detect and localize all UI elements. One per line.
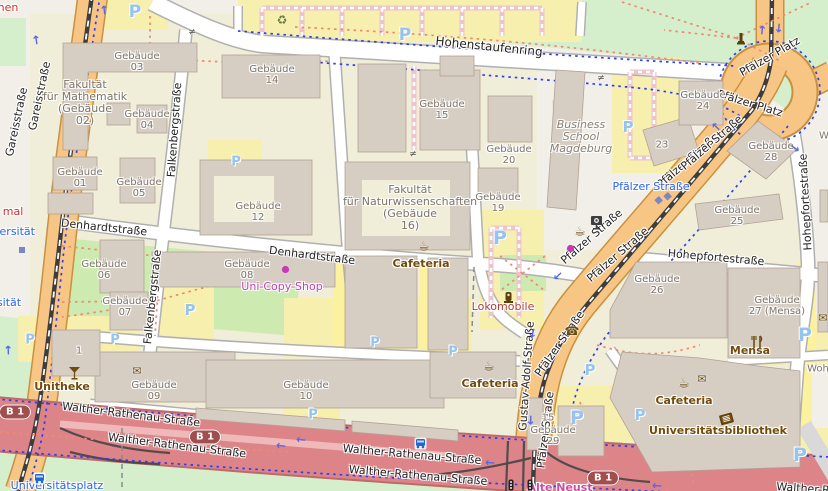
building-label-gebaeude-12: Gebäude 12 [235,201,280,223]
amenity-label-cafeteria: Cafeteria [655,395,712,407]
parking-icon: P [798,324,812,346]
parking-icon: P [399,25,411,45]
cafe-icon: ☕ [483,361,495,374]
parking-icon: P [231,155,241,170]
parking-icon: P [448,345,458,360]
street-label-walther-rathenau: Walther-Rathenau-Straße [348,464,487,488]
label-cut-mal: mal [3,206,24,218]
building-label-gebaeude-28: Gebäude 28 [748,141,793,163]
campus-map[interactable]: HohenstaufenringGareisstraßeGareisstraße… [0,0,828,491]
street-label-pfaelzer-platz: Pfälzer Platz [716,88,784,119]
route-shield-b1: B 1 [189,430,221,445]
street-label-pfaelzer-strasse: Pfälzer Straße [533,309,587,379]
building-label-1: 1 [76,346,82,357]
street-label-hohepfortestrasse: Hohepfortestraße [667,248,765,268]
telephone-icon: ☎ [565,325,580,337]
street-label-walther-rathenau: Walther-Rathenau-Straße [107,432,246,461]
oneway-arrow-icon: → [28,34,43,46]
oneway-arrow-icon: → [772,22,787,33]
parking-icon: P [635,406,646,424]
oneway-arrow-icon: → [1,345,16,356]
building-label-gebaeude-03: Gebäude 03 [114,51,159,73]
parking-icon: P [623,118,634,136]
cafe-icon: ☕ [418,241,430,254]
street-label-walther-rathenau: Walther-Rathenau-Straße [61,401,200,430]
parking-icon: P [570,407,584,429]
building-label-23: 23 [656,140,669,151]
stop-label-universitaet-cut: versität [0,226,35,238]
building-label-gebaeude-25: Gebäude 25 [714,205,759,227]
building-label-gebaeude-09: Gebäude 09 [131,380,176,402]
gate-barrier-icon: ≠ [188,29,196,38]
parking-icon: P [25,333,35,348]
oneway-arrow-icon: → [295,433,306,448]
cafe-icon: ☕ [678,378,690,391]
post-box-icon: ✉ [818,313,827,324]
building-label-15: 15 [542,413,555,424]
gate-barrier-icon: ≠ [597,75,605,84]
parking-icon: P [585,361,596,379]
street-label-walther-rathenau-cut: Walther-R [776,481,828,491]
street-label-pfaelzer-platz: Pfälzer Platz [738,35,802,79]
building-label-gebaeude-24: Gebäude 24 [680,90,725,112]
building-label-woh-cut: Woh [807,364,828,375]
tram-stop-label-pfaelzer-strasse: Pfälzer Straße [612,181,689,193]
building-label-gebaeude-26: Gebäude 26 [634,274,679,296]
building-label-gebaeude-06: Gebäude 06 [81,259,126,281]
route-shield-b1: B 1 [587,471,619,486]
amenity-label-unitheke: Unitheke [34,381,90,393]
parking-icon: P [185,301,196,319]
amenity-label-cafeteria: Cafeteria [392,258,449,270]
building-label-gebaeude-07: Gebäude 07 [102,296,147,318]
parking-icon: P [129,2,141,22]
building-label-gebaeude-14: Gebäude 14 [249,64,294,86]
street-label-denhardtstrasse: Denhardtstraße [60,217,147,238]
label-layer: HohenstaufenringGareisstraßeGareisstraße… [0,0,828,491]
building-label-business-school: Business School Magdeburg [550,119,612,155]
building-label-gebaeude-10: Gebäude 10 [283,380,328,402]
parking-icon: P [370,336,380,351]
building-label-gebaeude-27-mensa: Gebäude 27 (Mensa) [749,295,805,317]
stop-label-universitaetsplatz: Universitätsplatz [11,480,104,491]
label-cut-nen: nen [0,2,18,14]
building-label-gebaeude-01: Gebäude 01 [57,167,102,189]
oneway-arrow-icon: → [524,415,538,426]
oneway-arrow-icon: → [651,479,662,491]
building-label-gebaeude-19: Gebäude 19 [475,192,520,214]
building-label-gebaeude-20: Gebäude 20 [486,144,531,166]
oneway-arrow-icon: → [755,24,770,35]
place-label-alte-neustadt-cut: Alte Neust [527,482,592,491]
building-label-gebaeude-15: Gebäude 15 [419,99,464,121]
gate-barrier-icon: ≠ [409,151,417,160]
cafe-icon: ☕ [574,226,586,239]
building-label-fakultaet-mathematik: Fakultät für Mathematik (Gebäude 02) [43,79,127,127]
building-label-fakultaet-naturwissenschaften: Fakultät für Naturwissenschaften (Gebäud… [343,184,477,232]
oneway-arrow-icon: → [485,456,496,471]
shop-label-uni-copy-shop: Uni-Copy-Shop [241,281,322,293]
amenity-label-cafeteria: Cafeteria [461,378,518,390]
building-label-gebaeude-05: Gebäude 05 [116,177,161,199]
stop-label-universitaet-cut: sität [0,297,21,309]
street-label-hohenstaufenring: Hohenstaufenring [435,35,543,59]
building-label-gebaeude-29: Gebäude 29 [530,425,575,447]
building-label-gebaeude-08: Gebäude 08 [224,259,269,281]
building-label-gebaeude-04: Gebäude 04 [124,109,169,131]
parking-icon: P [110,333,120,348]
parking-icon: P [793,444,807,466]
route-shield-b1: B 1 [0,405,31,420]
oneway-arrow-icon: → [275,439,286,454]
parking-icon: P [308,408,318,423]
parking-icon: P [493,227,507,249]
post-box-icon: ✉ [697,374,706,385]
building-label-w-cut: W [819,131,828,142]
street-label-denhardtstrasse: Denhardtstraße [268,245,355,268]
oneway-arrow-icon: → [550,267,567,284]
street-label-hohepfortestrasse: Hohepfortestraße [797,153,814,250]
recycling-icon: ♻ [277,14,288,26]
post-box-icon: ✉ [132,366,141,377]
oneway-arrow-icon: → [96,4,111,16]
